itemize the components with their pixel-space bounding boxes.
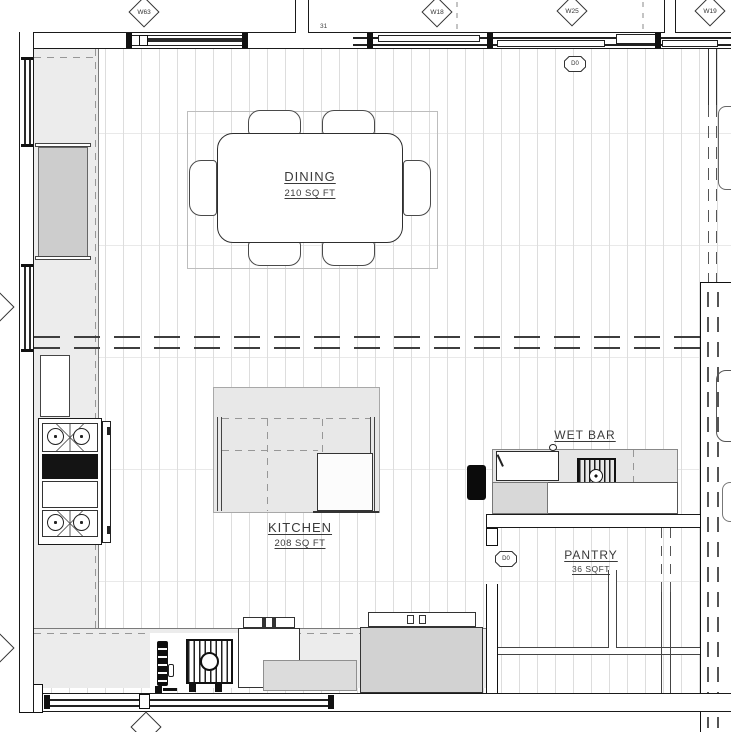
window-cap <box>21 144 33 147</box>
wetbar-sink-faucet <box>589 469 603 483</box>
pantry-left-wall <box>486 584 498 695</box>
window-post <box>328 695 334 709</box>
wetbar-lower-cabinet-gray <box>492 482 548 514</box>
faucet-foot <box>155 686 162 693</box>
wetbar-room-label: WET BAR <box>525 428 645 442</box>
window-tag-diamond: W63 <box>128 0 159 28</box>
dining-chair <box>403 160 431 216</box>
window-post <box>367 33 373 48</box>
window-tag-diamond: W18 <box>421 0 452 28</box>
range-drawer <box>42 481 98 508</box>
bottom-wall <box>19 693 731 712</box>
window-mullion-box <box>139 35 148 46</box>
window-sash <box>378 35 480 42</box>
dining-chair <box>189 160 217 216</box>
pantry-header-dashed-line <box>670 528 671 592</box>
range-front-panel <box>102 421 111 543</box>
ceiling-break-line <box>34 336 701 338</box>
kitchen-room-area: 208 SQ FT <box>235 538 365 549</box>
grid-line-tick <box>642 2 644 30</box>
burner <box>47 514 64 531</box>
window-tag-diamond-partial <box>0 632 15 663</box>
wetbar-cabinet-dashed-line <box>633 450 634 482</box>
wetbar-fridge-knob <box>549 444 557 451</box>
opening-dashed-line <box>707 292 709 728</box>
window-mullion-box <box>139 694 150 709</box>
window-post <box>487 33 493 48</box>
left-wall <box>19 32 34 712</box>
window-tag-diamond-partial <box>0 291 15 322</box>
window-cap <box>21 349 33 352</box>
dining-chair <box>322 241 375 266</box>
right-sidelight-line <box>708 49 709 105</box>
burner <box>73 514 90 531</box>
island-cabinet-dashed-line <box>322 419 323 452</box>
window-glazing-line <box>24 60 26 144</box>
window-sash <box>497 40 605 47</box>
dining-room-label: DINING <box>245 169 375 184</box>
refrigerator <box>38 147 88 257</box>
right-opening-dashed-line <box>708 105 709 282</box>
opening-dashed-line <box>717 292 719 728</box>
range-handle <box>107 427 111 435</box>
window-tag-diamond-partial <box>130 711 161 732</box>
wetbar-pantry-wall <box>486 514 731 528</box>
window-rail <box>46 705 331 707</box>
pantry-header-dashed-line <box>661 528 662 592</box>
counter-appliance-gray <box>263 660 357 691</box>
burner <box>73 428 90 445</box>
window-cap <box>21 57 33 60</box>
faucet-knob <box>419 615 426 624</box>
door-tag-hexagon: D0 <box>564 56 586 72</box>
door-tag-hexagon: D0 <box>495 551 517 567</box>
window-post <box>655 33 661 48</box>
window-tag-label: W63 <box>134 2 154 22</box>
island-cabinet-dashed-line <box>222 418 370 419</box>
window-post <box>242 33 248 48</box>
dining-chair <box>248 241 301 266</box>
grill-leg <box>215 684 222 692</box>
window-glazing <box>143 38 243 42</box>
rail-tab <box>262 617 266 628</box>
window-post <box>126 33 132 48</box>
grill-burner <box>200 652 219 671</box>
pantry-room-label: PANTRY <box>531 548 651 562</box>
ceiling-break-line <box>34 347 701 349</box>
upper-wall-stub <box>664 0 676 33</box>
pot-filler-faucet <box>157 641 168 686</box>
faucet-foot <box>163 688 177 691</box>
dining-chair <box>248 110 301 135</box>
burner <box>47 428 64 445</box>
wetbar-fridge <box>496 451 559 481</box>
island-cabinet-dashed-line <box>222 450 318 451</box>
dining-room-area: 210 SQ FT <box>245 188 375 199</box>
island-post-left <box>217 417 222 511</box>
window-tag-diamond: W25 <box>556 0 587 27</box>
refrigerator-counter-cap <box>35 256 91 260</box>
window-glazing-line <box>29 267 31 349</box>
window-glazing-line <box>29 60 31 144</box>
main-sink <box>360 627 483 693</box>
window-post <box>44 695 50 709</box>
adjacent-room-furniture-partial <box>716 370 731 442</box>
window-tag-label: W18 <box>427 2 447 22</box>
pantry-wall-stub <box>486 528 498 546</box>
right-opening-dashed-line <box>716 105 717 282</box>
adjacent-room-furniture-partial <box>722 482 731 522</box>
dining-chair <box>322 110 375 135</box>
window-rail <box>46 699 331 701</box>
window-tag-label: W25 <box>562 1 582 21</box>
dishwasher <box>40 355 70 417</box>
cabinet-top-rail <box>243 617 295 628</box>
grill-leg <box>189 684 196 692</box>
pantry-shelf-divider <box>608 570 617 648</box>
window-sash <box>616 34 658 44</box>
dimension-mark: 31 <box>320 23 334 30</box>
window-glazing-line <box>24 267 26 349</box>
range-griddle <box>42 454 98 479</box>
pantry-partition-line <box>670 592 671 695</box>
range-handle <box>107 526 111 534</box>
upper-wall-stub <box>295 0 309 33</box>
faucet-lever <box>168 664 174 677</box>
corner-cabinet-dashed-line <box>34 57 99 58</box>
wall-mounted-fixture <box>467 465 486 500</box>
window-cap <box>21 264 33 267</box>
kitchen-room-label: KITCHEN <box>235 520 365 535</box>
pantry-partition-line <box>661 592 662 695</box>
window-tag-label: W19 <box>700 1 720 21</box>
window-sash <box>662 40 718 47</box>
island-counter-ledge <box>313 511 379 513</box>
door-tag-label: D0 <box>496 552 516 566</box>
island-cabinet-dashed-line <box>267 419 268 511</box>
right-sidelight-line <box>716 49 717 105</box>
window-tag-diamond: W19 <box>694 0 725 27</box>
pantry-room-area: 36 SQFT <box>531 564 651 574</box>
grid-line-tick <box>456 2 458 30</box>
rail-tab <box>272 617 276 628</box>
island-prep-counter <box>317 453 373 511</box>
faucet-knob <box>407 615 414 624</box>
adjacent-room-furniture-partial <box>718 106 731 190</box>
door-tag-label: D0 <box>565 57 585 71</box>
floor-plan: DINING 210 SQ FT KITCHEN 208 SQ FT WET B… <box>0 0 731 732</box>
